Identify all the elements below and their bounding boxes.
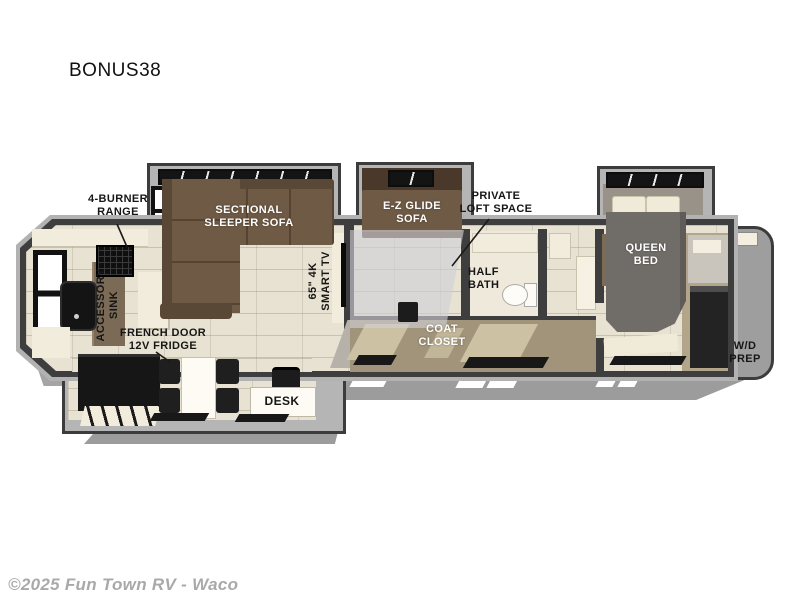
label-fridge: FRENCH DOOR 12V FRIDGE [103,327,223,353]
label-loft-space: PRIVATE LOFT SPACE [436,190,556,216]
label-smart-tv: 65" 4K SMART TV [307,245,337,317]
label-queen-bed: QUEEN BED [606,242,686,268]
label-sectional-sofa: SECTIONAL SLEEPER SOFA [179,204,319,230]
label-desk: DESK [252,394,312,408]
label-range: 4-BURNER RANGE [58,193,178,219]
label-coat-closet: COAT CLOSET [402,323,482,349]
floorplan-page: BONUS38 [0,0,800,600]
label-wd-prep: W/D PREP [720,340,770,366]
label-half-bath: HALF BATH [468,266,528,292]
